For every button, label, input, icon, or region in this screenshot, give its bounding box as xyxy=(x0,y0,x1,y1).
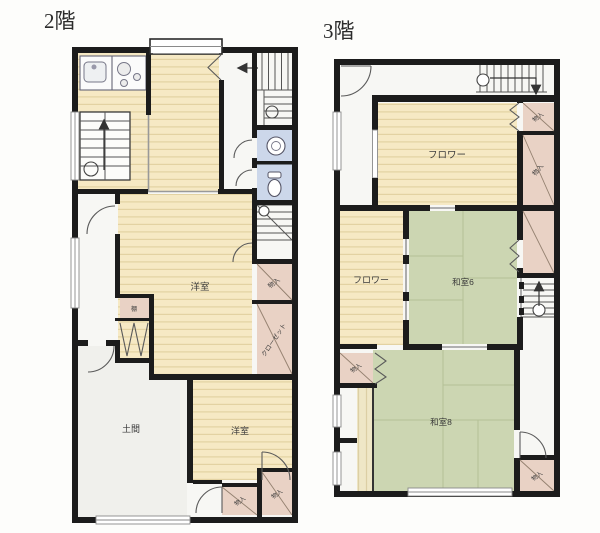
floor3-veranda-strip xyxy=(357,388,373,491)
washitsu8-label: 和室8 xyxy=(430,417,452,427)
shelf-label: 棚 xyxy=(131,305,137,313)
staircase-west xyxy=(80,112,130,180)
floor3-plan: フロワー フロワー 和室6 和室8 物入 物入 物入 物入 xyxy=(333,59,560,497)
washitsu6-label: 和室6 xyxy=(452,277,474,287)
floorplan-page: 2階 3階 xyxy=(0,0,600,533)
floorplan-drawing: 2階 3階 xyxy=(0,0,600,533)
floor3-title: 3階 xyxy=(323,19,355,43)
floor-north-label: フロワー xyxy=(428,150,466,161)
floor-west-label: フロワー xyxy=(353,275,389,285)
kitchen-counter xyxy=(80,56,146,90)
main-room-label: 洋室 xyxy=(190,281,209,293)
doma-label: 土間 xyxy=(122,423,140,434)
south-room-label: 洋室 xyxy=(231,425,249,436)
washbasin-icon xyxy=(267,137,285,155)
floor2-main-room-floor xyxy=(118,194,252,374)
floor2-title: 2階 xyxy=(44,9,76,33)
toilet-icon xyxy=(268,172,281,197)
floor2-plan: 洋室 洋室 土間 棚 物入 クローゼット 物入 物入 xyxy=(71,39,298,524)
